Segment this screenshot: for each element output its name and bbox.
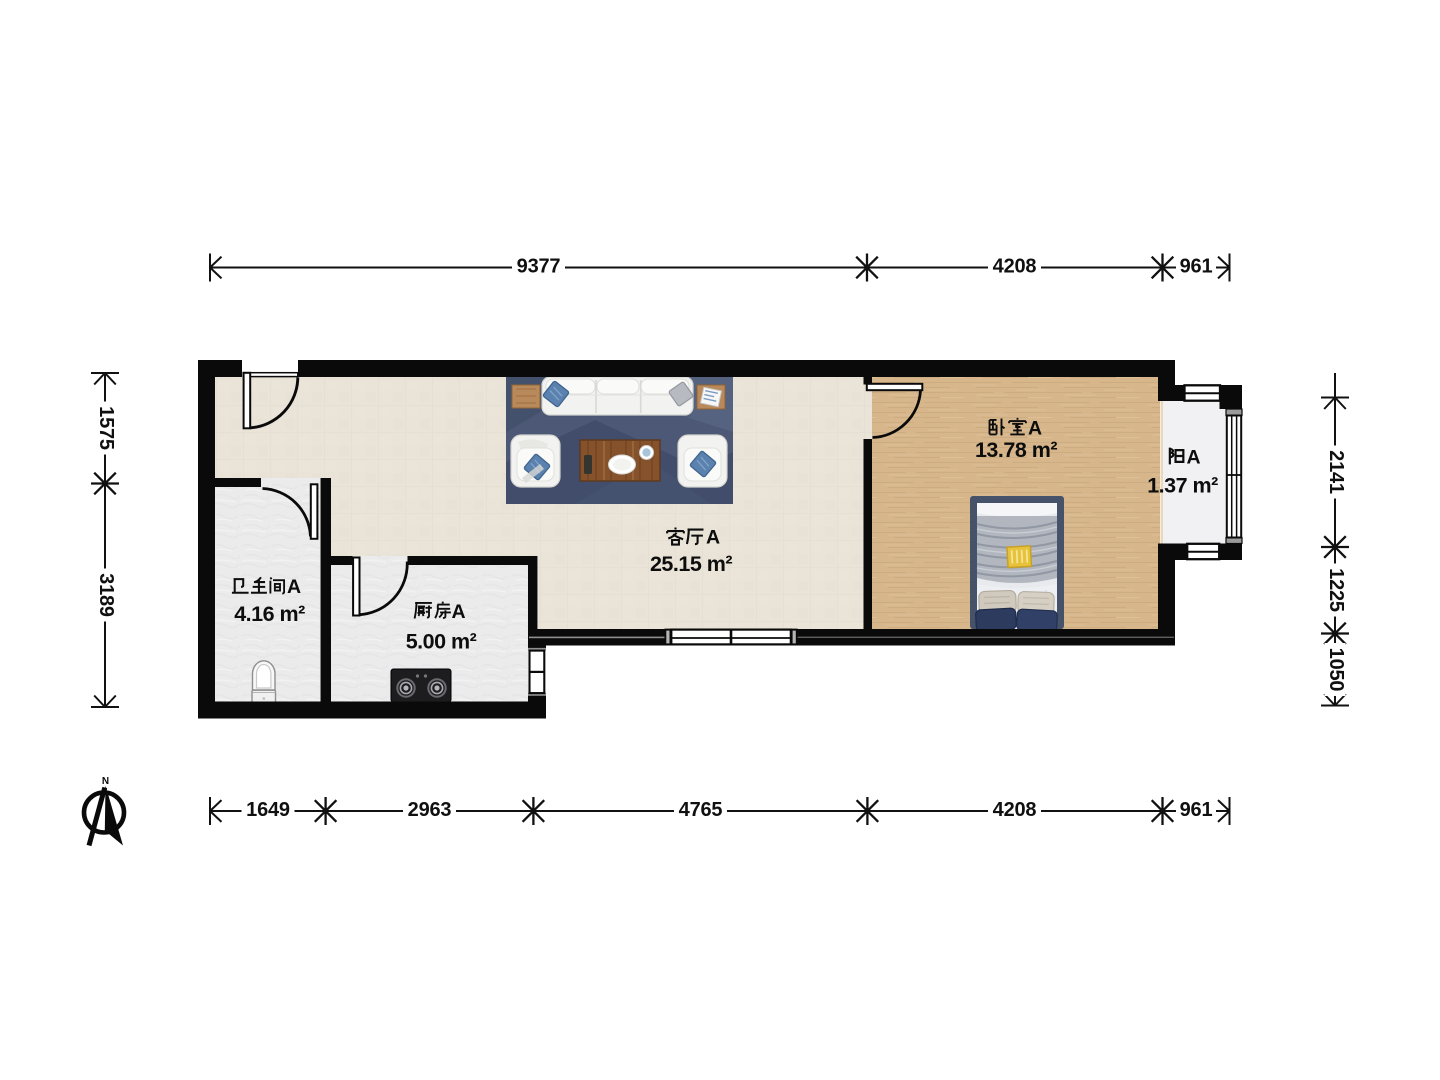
- svg-text:4765: 4765: [679, 799, 723, 821]
- svg-text:1.37 m²: 1.37 m²: [1147, 473, 1218, 497]
- svg-text:961: 961: [1180, 799, 1213, 821]
- svg-text:2963: 2963: [408, 799, 452, 821]
- svg-text:3189: 3189: [95, 573, 117, 617]
- svg-text:A: A: [706, 527, 720, 549]
- svg-text:1225: 1225: [1325, 568, 1347, 612]
- svg-text:1649: 1649: [246, 799, 290, 821]
- svg-text:13.78 m²: 13.78 m²: [975, 438, 1057, 462]
- svg-text:5.00 m²: 5.00 m²: [406, 629, 477, 653]
- svg-text:961: 961: [1180, 256, 1213, 278]
- svg-text:4.16 m²: 4.16 m²: [234, 602, 305, 626]
- svg-text:25.15 m²: 25.15 m²: [650, 552, 732, 576]
- svg-text:9377: 9377: [517, 256, 561, 278]
- svg-text:A: A: [451, 601, 465, 623]
- svg-text:1050: 1050: [1325, 648, 1347, 692]
- svg-text:2141: 2141: [1325, 450, 1347, 494]
- svg-text:4208: 4208: [993, 799, 1037, 821]
- svg-text:4208: 4208: [993, 256, 1037, 278]
- svg-text:1575: 1575: [95, 406, 117, 450]
- svg-text:A: A: [1028, 417, 1042, 439]
- svg-text:A: A: [1186, 446, 1200, 468]
- svg-text:N: N: [102, 776, 109, 787]
- svg-text:A: A: [287, 576, 301, 598]
